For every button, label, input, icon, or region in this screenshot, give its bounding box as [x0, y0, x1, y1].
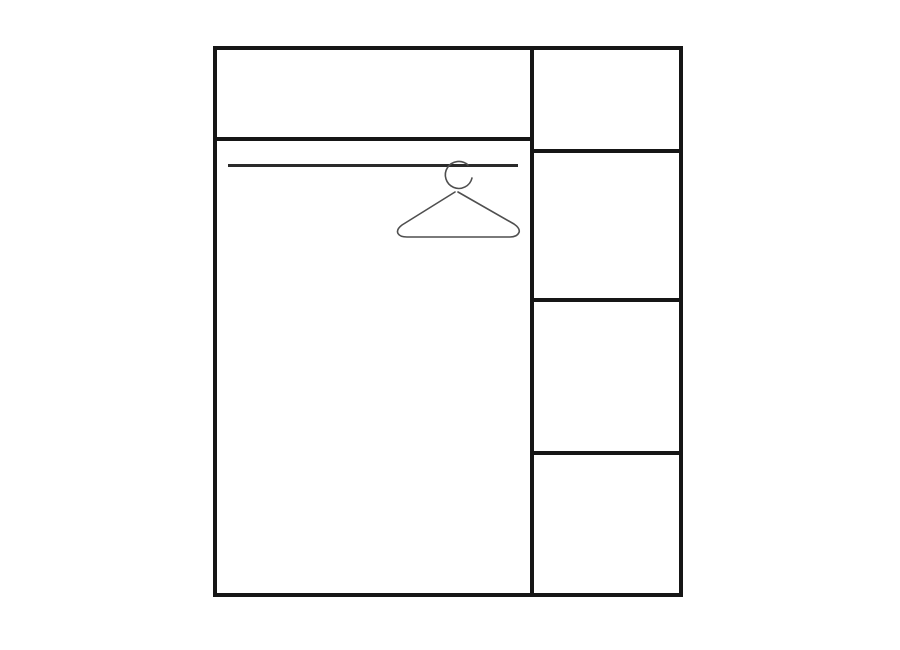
wardrobe-diagram — [0, 0, 900, 650]
right-shelf-divider-3 — [530, 451, 683, 455]
left-top-shelf-divider — [213, 137, 534, 141]
right-shelf-divider-1 — [530, 149, 683, 153]
wardrobe-outer-frame — [213, 46, 683, 597]
clothes-hanger-icon — [385, 152, 535, 247]
hanger-body — [398, 192, 520, 237]
center-vertical-divider — [530, 46, 534, 597]
right-shelf-divider-2 — [530, 298, 683, 302]
hanger-hook — [445, 161, 472, 188]
